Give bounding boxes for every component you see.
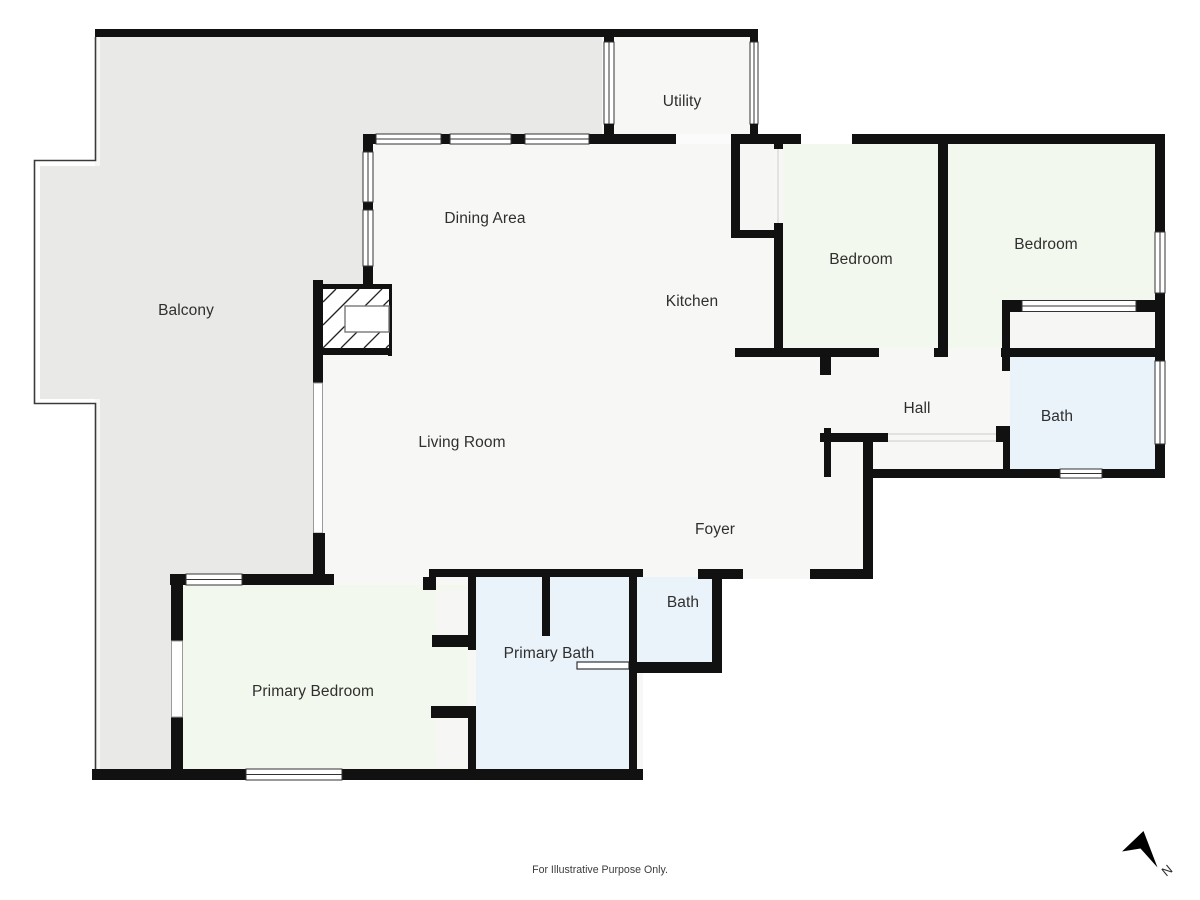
svg-text:Bedroom: Bedroom bbox=[1014, 236, 1078, 253]
svg-text:Living Room: Living Room bbox=[418, 434, 505, 451]
svg-text:Utility: Utility bbox=[663, 93, 702, 110]
svg-text:Primary Bedroom: Primary Bedroom bbox=[252, 683, 374, 700]
svg-text:Bath: Bath bbox=[1041, 408, 1073, 425]
svg-text:Hall: Hall bbox=[903, 400, 930, 417]
svg-text:For Illustrative Purpose Only.: For Illustrative Purpose Only. bbox=[532, 864, 668, 876]
svg-text:Balcony: Balcony bbox=[158, 302, 214, 319]
svg-text:Bedroom: Bedroom bbox=[829, 251, 893, 268]
svg-text:Bath: Bath bbox=[667, 594, 699, 611]
svg-text:Dining Area: Dining Area bbox=[444, 210, 526, 227]
svg-text:Primary Bath: Primary Bath bbox=[504, 645, 595, 662]
svg-text:Kitchen: Kitchen bbox=[666, 293, 718, 310]
svg-text:Foyer: Foyer bbox=[695, 521, 735, 538]
